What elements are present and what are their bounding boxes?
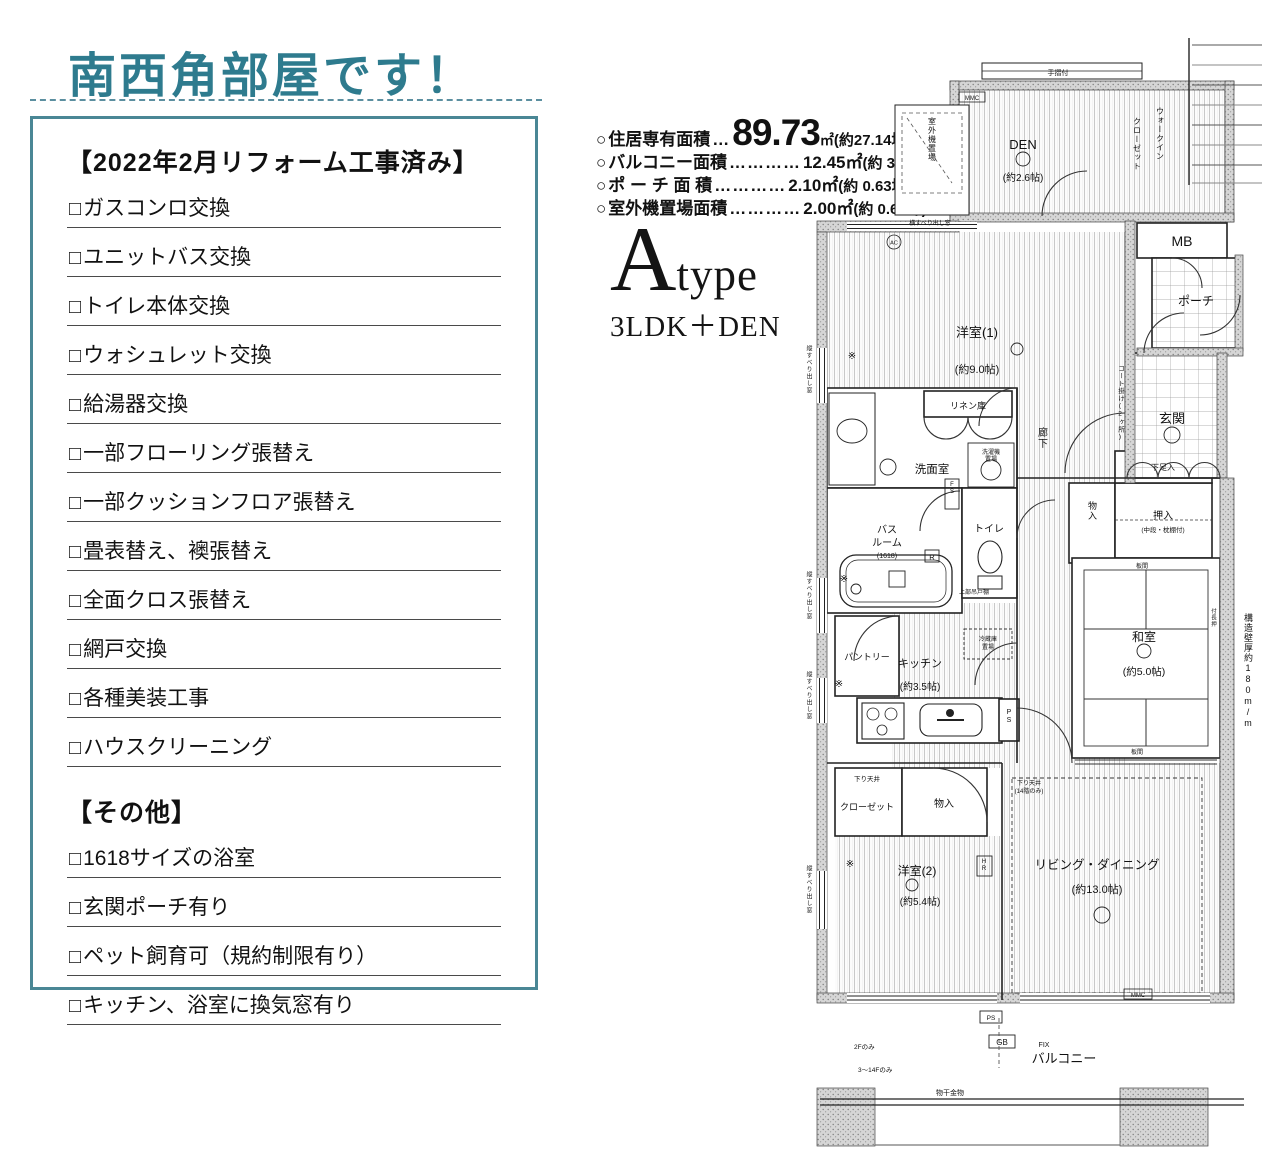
item-label: ウォシュレット交換 <box>83 339 272 369</box>
list-item: □ハウスクリーニング <box>67 731 501 767</box>
renovation-heading: 【2022年2月リフォーム工事済み】 <box>67 143 501 179</box>
kitchen-label: キッチン <box>898 657 942 670</box>
list-item: □各種美装工事 <box>67 682 501 718</box>
washer-label-1: 洗濯機 <box>982 448 1000 456</box>
renovation-box: 【2022年2月リフォーム工事済み】 □ガスコンロ交換 □ユニットバス交換 □ト… <box>30 116 538 990</box>
item-label: 一部フローリング張替え <box>83 437 314 467</box>
list-item: □網戸交換 <box>67 633 501 669</box>
genkan-label: 玄関 <box>1159 411 1185 426</box>
porch-label: ポーチ <box>1178 294 1214 308</box>
circle-bullet-icon: ○ <box>596 175 606 198</box>
hall-storage <box>1069 483 1115 563</box>
washer-label-2: 置場 <box>985 455 997 463</box>
kome-mark: ※ <box>848 351 856 362</box>
ac-label: AC <box>890 241 898 247</box>
item-label: 全面クロス張替え <box>83 584 251 614</box>
balcony-label: バルコニー <box>1032 1051 1097 1066</box>
page-title: 南西角部屋です！ <box>68 36 476 106</box>
hall-storage-label: 物入 <box>1087 500 1097 521</box>
list-item: □畳表替え、襖張替え <box>67 535 501 571</box>
pantry-label: パントリー <box>844 652 889 662</box>
gb-label: GB <box>996 1038 1008 1047</box>
lowered-ceiling-label: 下り天井 <box>854 774 881 783</box>
other-heading: 【その他】 <box>67 793 501 829</box>
wic-label-2: クローゼット <box>1133 117 1142 171</box>
list-item: □トイレ本体交換 <box>67 290 501 326</box>
hr-label: HR <box>981 859 987 873</box>
handrail-label: 手摺付 <box>1048 68 1069 77</box>
checkbox-icon: □ <box>69 897 81 920</box>
bedroom1-label: 洋室(1) <box>956 325 998 340</box>
item-label: 給湯器交換 <box>83 388 188 418</box>
bathroom-size: (1618) <box>877 553 897 560</box>
lowered-ceiling14-2: (14階のみ) <box>1015 787 1044 795</box>
item-label: 網戸交換 <box>83 633 167 663</box>
floor314-note: 3〜14Fのみ <box>858 1066 893 1074</box>
kome-mark: ※ <box>840 574 848 585</box>
checkbox-icon: □ <box>69 541 81 564</box>
bathroom <box>827 488 962 613</box>
item-label: トイレ本体交換 <box>83 290 230 320</box>
type-line: Atype <box>610 218 781 301</box>
item-label: ガスコンロ交換 <box>83 192 230 222</box>
r-label: R <box>929 553 935 562</box>
item-label: ユニットバス交換 <box>83 241 251 271</box>
den-size: (約2.6帖) <box>1003 171 1044 184</box>
linen-label: リネン庫 <box>950 400 986 411</box>
item-label: ハウスクリーニング <box>83 731 272 761</box>
circle-bullet-icon: ○ <box>596 129 606 152</box>
window-label: 縦すべり出し窓 <box>805 670 812 720</box>
kitchen-size: (約3.5帖) <box>900 680 941 693</box>
window-label: 縦すべり出し窓 <box>805 570 812 620</box>
flyer-page: 南西角部屋です！ 【2022年2月リフォーム工事済み】 □ガスコンロ交換 □ユニ… <box>0 0 1280 1164</box>
toilet-room <box>962 488 1017 598</box>
list-item: □ペット飼育可（規約制限有り） <box>67 940 501 976</box>
washitsu-label: 和室 <box>1132 629 1156 644</box>
checkbox-icon: □ <box>69 394 81 417</box>
checkbox-icon: □ <box>69 639 81 662</box>
fridge-label-1: 冷蔵庫 <box>979 635 997 643</box>
area-label: 住居専有面積 <box>608 129 710 152</box>
list-item: □全面クロス張替え <box>67 584 501 620</box>
shoe-label: 下足入 <box>1151 463 1175 472</box>
leader-dots: … <box>712 129 730 152</box>
living-label: リビング・ダイニング <box>1034 857 1159 872</box>
item-label: 各種美装工事 <box>83 682 209 712</box>
list-item: □ウォシュレット交換 <box>67 339 501 375</box>
item-label: 玄関ポーチ有り <box>83 891 230 921</box>
item-label: 1618サイズの浴室 <box>83 842 255 872</box>
kome-mark: ※ <box>835 679 843 690</box>
den-label: DEN <box>1009 137 1036 152</box>
outdoor-unit-label: 室外機置場 <box>928 116 937 162</box>
bedroom2-size: (約5.4帖) <box>900 895 941 908</box>
unit-type: Atype 3LDK＋DEN <box>610 218 781 345</box>
checkbox-icon: □ <box>69 443 81 466</box>
fridge-label-2: 置場 <box>982 643 994 651</box>
itama-label: 板間 <box>1136 562 1148 570</box>
leader-dots: ………… <box>729 152 801 175</box>
list-item: □キッチン、浴室に換気窓有り <box>67 989 501 1025</box>
checkbox-icon: □ <box>69 995 81 1018</box>
checkbox-icon: □ <box>69 590 81 613</box>
washitsu-size: (約5.0帖) <box>1123 665 1166 678</box>
laundry-hw-label: 物干金物 <box>936 1088 964 1097</box>
checkbox-icon: □ <box>69 492 81 515</box>
storage2-label: 物入 <box>934 797 954 810</box>
list-item: □一部クッションフロア張替え <box>67 486 501 522</box>
item-label: ペット飼育可（規約制限有り） <box>83 940 377 970</box>
checkbox-icon: □ <box>69 848 81 871</box>
floorplan: DEN (約2.6帖) ウォークイン クローゼット 手摺付 室外機置場 横すべり… <box>792 33 1266 1159</box>
fix-label: FIX <box>1039 1042 1050 1049</box>
oshiire-label: 押入 <box>1153 509 1173 522</box>
oshiire-sub: (中段・枕棚付) <box>1141 525 1184 534</box>
list-item: □ユニットバス交換 <box>67 241 501 277</box>
list-item: □ガスコンロ交換 <box>67 192 501 228</box>
mmc-label: MMC <box>965 96 980 102</box>
living-size: (約13.0帖) <box>1072 882 1123 896</box>
bathroom-label-1: バス <box>877 524 897 536</box>
window-label: 縦すべり出し窓 <box>805 864 812 914</box>
checkbox-icon: □ <box>69 247 81 270</box>
list-item: □一部フローリング張替え <box>67 437 501 473</box>
toilet-label: トイレ <box>974 524 1004 535</box>
area-label: バルコニー面積 <box>608 152 727 175</box>
circle-bullet-icon: ○ <box>596 152 606 175</box>
bedroom1-size: (約9.0帖) <box>955 362 1000 376</box>
wic-label-1: ウォークイン <box>1156 107 1165 161</box>
window-label: 横すべり出し窓 <box>909 219 951 227</box>
circle-bullet-icon: ○ <box>596 198 606 221</box>
list-item: □玄関ポーチ有り <box>67 891 501 927</box>
bathroom-label-2: ルーム <box>872 537 902 549</box>
ps-label: PS <box>1006 709 1013 725</box>
hallway-label: 廊下 <box>1036 426 1048 449</box>
type-layout: 3LDK＋DEN <box>610 303 781 345</box>
area-label: ポ ー チ 面 積 <box>608 175 712 198</box>
checkbox-icon: □ <box>69 296 81 319</box>
type-letter: A <box>610 218 676 301</box>
kome-mark: ※ <box>846 859 854 870</box>
nageshi-label: 付長押 <box>1210 607 1217 628</box>
ps-balcony-label: PS <box>987 1015 996 1022</box>
bedroom2-label: 洋室(2) <box>898 863 937 878</box>
checkbox-icon: □ <box>69 345 81 368</box>
list-item: □1618サイズの浴室 <box>67 842 501 878</box>
lowered-ceiling14-1: 下り天井 <box>1017 779 1041 787</box>
list-item: □給湯器交換 <box>67 388 501 424</box>
checkbox-icon: □ <box>69 198 81 221</box>
upper-cabinet-label: 上部吊戸棚 <box>959 588 989 596</box>
floor2-note: 2Fのみ <box>854 1043 875 1051</box>
item-label: 一部クッションフロア張替え <box>83 486 355 516</box>
item-label: 畳表替え、襖張替え <box>83 535 272 565</box>
itama-label: 板間 <box>1131 748 1143 756</box>
checkbox-icon: □ <box>69 737 81 760</box>
fs-label: FS <box>949 482 955 496</box>
title-divider <box>30 99 542 101</box>
type-word: type <box>676 249 757 301</box>
checkbox-icon: □ <box>69 688 81 711</box>
window-label: 縦すべり出し窓 <box>805 344 812 394</box>
mb-label: MB <box>1172 233 1193 249</box>
leader-dots: ………… <box>714 175 786 198</box>
washroom-label: 洗面室 <box>915 462 950 476</box>
item-label: キッチン、浴室に換気窓有り <box>83 989 355 1019</box>
wall-thickness-note: 構造壁厚約180m/m <box>1243 612 1253 729</box>
mmc-label: MMC <box>1131 993 1146 999</box>
checkbox-icon: □ <box>69 946 81 969</box>
closet-label: クローゼット <box>840 801 894 812</box>
